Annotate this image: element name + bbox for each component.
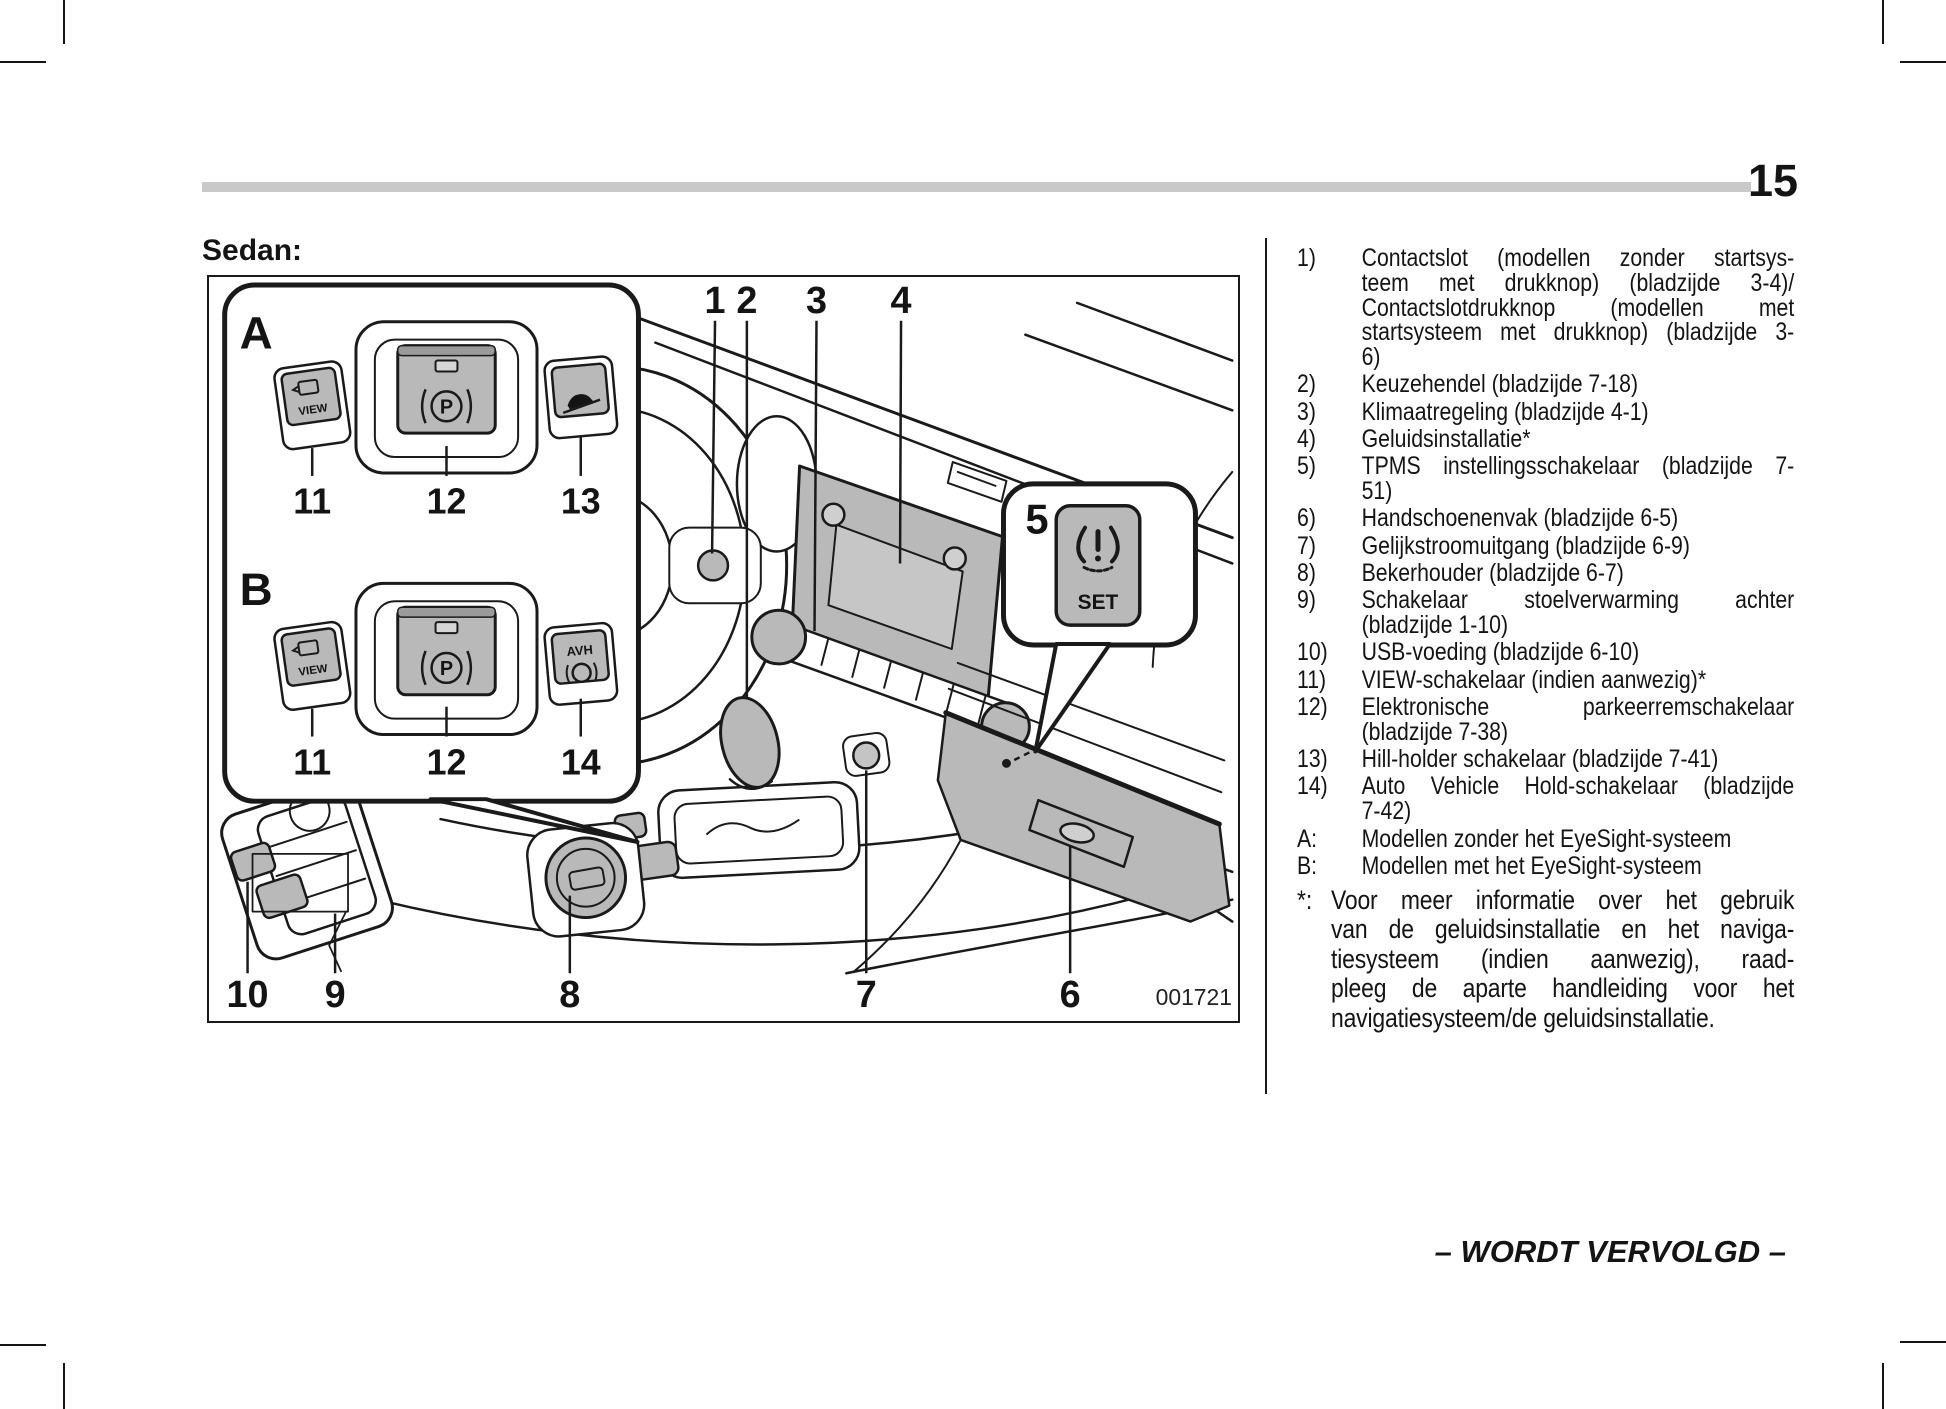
legend-list: 1)Contactslot (modellen zonder startsys-… [1297,246,1794,879]
legend-item: 1)Contactslot (modellen zonder startsys-… [1297,246,1794,370]
rear-vent-unit-icon [217,777,398,964]
callout-1: 1 [705,280,726,322]
hill-holder-button-icon [544,356,618,439]
legend-item-line: teem met drukknop) (bladzijde 3-4)/ [1362,271,1795,296]
legend-item-marker: 8) [1297,561,1362,586]
inset-label-11b: 11 [293,742,331,782]
legend-item-marker: 9) [1297,588,1362,638]
section-a-label: A [240,308,273,359]
set-label: SET [1078,591,1119,614]
legend-item-marker: 6) [1297,506,1362,531]
legend-item-marker: 14) [1297,774,1362,824]
legend-item-line: navigatiesysteem/de geluidsinstallatie. [1331,1004,1794,1034]
legend-item: 3)Klimaatregeling (bladzijde 4-1) [1297,400,1794,425]
inset-label-12a: 12 [427,482,467,522]
legend-item-line: (bladzijde 7-38) [1362,720,1795,745]
crop-mark [1900,61,1946,63]
legend-item-marker: 4) [1297,427,1362,452]
legend-item: 6)Handschoenenvak (bladzijde 6-5) [1297,506,1794,531]
legend-item-line: Hill-holder schakelaar (bladzijde 7-41) [1362,747,1795,772]
manual-page: 15 Sedan: [0,0,1946,1409]
legend-item-line: VIEW-schakelaar (indien aanwezig)* [1362,668,1795,693]
column-divider [1265,238,1267,1094]
page-number: 15 [1748,155,1828,207]
legend-item: 5)TPMS instellingsschakelaar (bladzijde … [1297,454,1794,504]
crop-mark [63,0,65,44]
tpms-balloon: 5 SET [1002,484,1195,768]
inset-label-11a: 11 [293,482,331,522]
footnote: *: Voor meer informatie over het gebruik… [1297,886,1794,1034]
legend-item-line: Keuzehendel (bladzijde 7-18) [1362,372,1795,397]
legend-item-line: 51) [1362,479,1795,504]
legend-item-marker: 5) [1297,454,1362,504]
legend-item-marker: B: [1297,854,1362,879]
section-b-label: B [240,564,273,615]
legend-item-marker: 2) [1297,372,1362,397]
legend-item-line: Contactslot (modellen zonder startsys- [1362,246,1795,271]
continued-footer: – WORDT VERVOLGD – [1435,1234,1786,1270]
svg-text:P: P [440,396,453,418]
legend-item-line: Voor meer informatie over het gebruik [1331,886,1794,916]
crop-mark [1900,1341,1946,1343]
crop-mark [0,1344,46,1346]
legend-item-line: Modellen met het EyeSight-systeem [1362,854,1795,879]
legend-item: 4)Geluidsinstallatie* [1297,427,1794,452]
legend-item: 11)VIEW-schakelaar (indien aanwezig)* [1297,668,1794,693]
legend-item-marker: A: [1297,827,1362,852]
callout-6: 6 [1060,974,1081,1016]
callout-9: 9 [325,974,346,1016]
inset-label-12b: 12 [427,742,467,782]
legend-item-line: Auto Vehicle Hold-schakelaar (bladzijde [1362,774,1795,799]
legend-item-line: Gelijkstroomuitgang (bladzijde 6-9) [1362,534,1795,559]
legend-item: 2)Keuzehendel (bladzijde 7-18) [1297,372,1794,397]
svg-text:AVH: AVH [566,642,594,659]
legend-item-line: Handschoenenvak (bladzijde 6-5) [1362,506,1795,531]
legend-item: 8)Bekerhouder (bladzijde 6-7) [1297,561,1794,586]
crop-mark [1882,0,1884,44]
legend-item: 14)Auto Vehicle Hold-schakelaar (bladzij… [1297,774,1794,824]
legend-column: 1)Contactslot (modellen zonder startsys-… [1297,246,1917,1033]
legend-item-line: Klimaatregeling (bladzijde 4-1) [1362,400,1795,425]
avh-button-icon: AVH [544,622,618,705]
legend-item: A:Modellen zonder het EyeSight-systeem [1297,827,1794,852]
legend-item-line: Schakelaar stoelverwarming achter [1362,588,1795,613]
legend-item-line: Geluidsinstallatie* [1362,427,1795,452]
dashboard-illustration: 1 2 3 4 10 9 8 7 6 A B [209,277,1238,1021]
inset-label-13: 13 [561,482,601,522]
legend-item-line: tiesysteem (indien aanwezig), raad- [1331,945,1794,975]
callout-5: 5 [1025,496,1048,543]
legend-item-line: TPMS instellingsschakelaar (bladzijde 7- [1362,454,1795,479]
legend-item-line: (bladzijde 1-10) [1362,613,1795,638]
legend-item-marker: 3) [1297,400,1362,425]
callout-7: 7 [856,974,877,1016]
sedan-heading: Sedan: [202,234,302,268]
gear-shifter-icon [657,691,860,879]
crop-mark [63,1363,65,1409]
legend-item: 10)USB-voeding (bladzijde 6-10) [1297,640,1794,665]
legend-item-line: Contactslotdrukknop (modellen met [1362,296,1795,321]
legend-item-marker: 12) [1297,695,1362,745]
view-button-icon: VIEW [273,621,351,711]
view-button-icon: VIEW [273,360,351,450]
legend-item-line: startsysteem met drukknop) (bladzijde 3- [1362,320,1795,345]
legend-item-line: Bekerhouder (bladzijde 6-7) [1362,561,1795,586]
legend-item: 9)Schakelaar stoelverwarming achter(blad… [1297,588,1794,638]
header-rule [202,182,1751,192]
callout-4: 4 [891,280,912,322]
inset-label-14: 14 [561,742,601,782]
callout-2: 2 [736,280,757,322]
legend-item-line: van de geluidsinstallatie en het naviga- [1331,915,1794,945]
legend-item: 7)Gelijkstroomuitgang (bladzijde 6-9) [1297,534,1794,559]
legend-item: 13)Hill-holder schakelaar (bladzijde 7-4… [1297,747,1794,772]
legend-item-marker: 1) [1297,246,1362,370]
legend-item: 12)Elektronische parkeerremschakelaar(bl… [1297,695,1794,745]
footnote-marker: *: [1297,886,1331,1034]
legend-item-line: Modellen zonder het EyeSight-systeem [1362,827,1795,852]
legend-item-line: 6) [1362,345,1795,370]
inset-panel: A B VIEW [225,285,639,842]
crop-mark [0,61,46,63]
figure-box: 1 2 3 4 10 9 8 7 6 A B [207,275,1240,1023]
callout-3: 3 [806,280,827,322]
legend-item-marker: 10) [1297,640,1362,665]
callout-10: 10 [227,974,269,1016]
legend-item-line: USB-voeding (bladzijde 6-10) [1362,640,1795,665]
legend-item-line: 7-42) [1362,799,1795,824]
legend-item-marker: 7) [1297,534,1362,559]
legend-item-line: pleeg de aparte handleiding voor het [1331,974,1794,1004]
callout-8: 8 [559,974,580,1016]
legend-item-marker: 13) [1297,747,1362,772]
legend-item-line: Elektronische parkeerremschakelaar [1362,695,1795,720]
crop-mark [1882,1363,1884,1409]
figure-id: 001721 [1156,984,1232,1010]
svg-text:P: P [440,658,453,680]
legend-item: B:Modellen met het EyeSight-systeem [1297,854,1794,879]
legend-item-marker: 11) [1297,668,1362,693]
